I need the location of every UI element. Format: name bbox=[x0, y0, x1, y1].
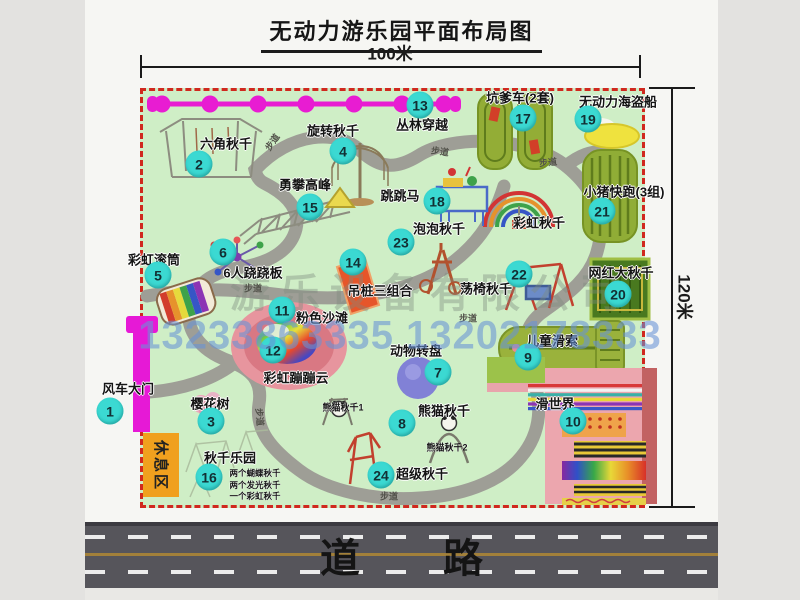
poi-badge-17: 17 bbox=[510, 105, 537, 132]
poi-badge-1: 1 bbox=[97, 398, 124, 425]
poi-label-12: 彩虹蹦蹦云 bbox=[263, 368, 328, 387]
road: 道 路 bbox=[85, 522, 718, 588]
page-title-text: 无动力游乐园平面布局图 bbox=[261, 14, 541, 53]
poi-badge-13: 13 bbox=[407, 92, 434, 119]
height-dimension-tick-top bbox=[649, 87, 695, 89]
poi-badge-8: 8 bbox=[389, 410, 416, 437]
width-dimension-line bbox=[141, 66, 641, 68]
poi-badge-16: 16 bbox=[196, 464, 223, 491]
poi-label-14: 吊桩三组合 bbox=[347, 281, 412, 300]
poi-label-17: 坑爹车(2套) bbox=[486, 88, 554, 107]
page-title: 无动力游乐园平面布局图 bbox=[85, 14, 718, 53]
poi-label-4: 旋转秋千 bbox=[307, 121, 359, 140]
poi-badge-7: 7 bbox=[425, 359, 452, 386]
poi-label-22: 荡椅秋千 bbox=[460, 279, 512, 298]
poi-badge-19: 19 bbox=[575, 106, 602, 133]
poi-badge-24: 24 bbox=[368, 462, 395, 489]
footpath-label-7: 步道 bbox=[380, 490, 398, 503]
poi-badge-10: 10 bbox=[560, 408, 587, 435]
swing-park-note-1: 两个蝴蝶秋千 bbox=[229, 467, 280, 479]
poi-sublabel-panda1: 熊猫秋千1 bbox=[322, 401, 363, 414]
poi-badge-23: 23 bbox=[388, 229, 415, 256]
poi-badge-3: 3 bbox=[198, 408, 225, 435]
poi-label-23: 泡泡秋千 bbox=[413, 219, 465, 238]
rest-area: 休息区 bbox=[143, 433, 179, 497]
width-dimension-tick-right bbox=[639, 55, 641, 78]
poi-label-1: 风车大门 bbox=[102, 379, 154, 398]
footpath-label-2: 步道 bbox=[430, 143, 450, 158]
poi-badge-18: 18 bbox=[424, 188, 451, 215]
poi-sublabel-panda2: 熊猫秋千2 bbox=[426, 441, 467, 454]
poi-label-18: 跳跳马 bbox=[380, 186, 419, 205]
road-label: 道 路 bbox=[85, 522, 718, 588]
park-layout-figure: 无动力游乐园平面布局图 100米 120米 bbox=[0, 0, 800, 600]
footpath-label-6: 步道 bbox=[253, 407, 268, 426]
watermark-phone: 13233863335 13202178333 bbox=[138, 314, 662, 359]
width-dimension-tick-left bbox=[140, 55, 142, 78]
photo-bottom-margin bbox=[85, 588, 718, 600]
height-dimension-tick-bottom bbox=[649, 506, 695, 508]
height-dimension-label: 120米 bbox=[674, 274, 699, 319]
poi-badge-21: 21 bbox=[589, 198, 616, 225]
poi-label-15: 勇攀高峰 bbox=[279, 175, 331, 194]
poi-badge-5: 5 bbox=[145, 262, 172, 289]
poi-label-2: 六角秋千 bbox=[200, 134, 252, 153]
poi-badge-2: 2 bbox=[186, 151, 213, 178]
poi-label-6: 6人跷跷板 bbox=[223, 263, 282, 282]
poi-badge-14: 14 bbox=[340, 249, 367, 276]
rest-area-label: 休息区 bbox=[151, 439, 172, 490]
footpath-label-3: 步道 bbox=[538, 155, 557, 170]
poi-label-24: 超级秋千 bbox=[396, 464, 448, 483]
poi-label-8: 熊猫秋千 bbox=[418, 401, 470, 420]
poi-label-20: 网红大秋千 bbox=[588, 263, 653, 282]
poi-badge-15: 15 bbox=[297, 194, 324, 221]
swing-park-note-3: 一个彩虹秋千 bbox=[229, 490, 280, 502]
poi-label-rs: 彩虹秋千 bbox=[513, 213, 565, 232]
poi-badge-20: 20 bbox=[605, 281, 632, 308]
poi-badge-22: 22 bbox=[506, 261, 533, 288]
poi-badge-4: 4 bbox=[330, 138, 357, 165]
footpath-label-4: 步道 bbox=[244, 282, 262, 295]
poi-badge-6: 6 bbox=[210, 239, 237, 266]
